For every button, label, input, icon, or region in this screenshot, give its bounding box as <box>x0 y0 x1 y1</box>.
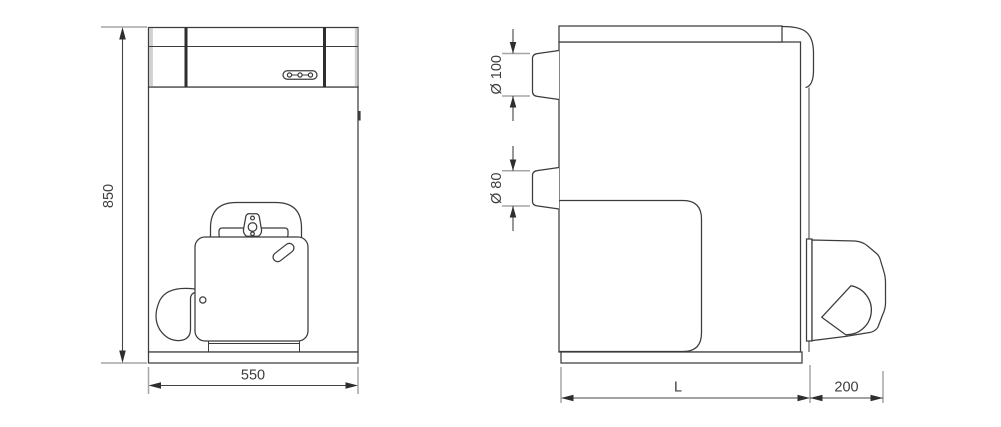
width-dimension-label: 550 <box>241 368 265 384</box>
arrowhead-up <box>510 206 517 218</box>
burner-projection-label: 200 <box>834 380 858 396</box>
top-panel-side <box>559 26 782 42</box>
hinge-hole-bottom <box>251 232 255 236</box>
pipe-diameter-dimension-80: Ø 80 <box>489 146 530 231</box>
boiler-side-outline <box>533 26 814 363</box>
base-plate <box>149 352 359 363</box>
burner-projection-dimension-200: 200 <box>810 365 883 403</box>
depth-dimension-L: L <box>561 367 810 403</box>
flue-diameter-label: Ø 100 <box>489 55 505 95</box>
side-view: Ø 100 Ø 80 L 200 <box>489 26 886 403</box>
edge-shading-left <box>149 28 153 86</box>
arrowhead-right <box>871 395 884 402</box>
arrowhead-right <box>798 395 811 402</box>
pipe-diameter-label: Ø 80 <box>489 173 505 204</box>
arrowhead-left <box>149 382 162 389</box>
flue-diameter-dimension-100: Ø 100 <box>489 29 530 121</box>
arrowhead-left <box>810 395 823 402</box>
front-view: 850 <box>101 27 361 394</box>
arrowhead-up <box>119 27 126 40</box>
control-knob-icon <box>308 73 312 77</box>
control-panel <box>283 71 317 79</box>
arrowhead-down <box>510 42 517 54</box>
arrowhead-down <box>119 351 126 364</box>
height-dimension-850: 850 <box>101 27 147 363</box>
hinge-hole-large <box>248 223 257 232</box>
housing-screw <box>200 297 206 303</box>
arrowhead-down <box>510 160 517 171</box>
technical-drawing-canvas: 850 <box>0 0 1001 427</box>
boiler-dimension-drawing: 850 <box>0 0 1001 427</box>
arrowhead-left <box>561 395 574 402</box>
hinge-hole-small <box>251 216 255 220</box>
cabinet-side-body <box>559 42 801 352</box>
edge-shading-right <box>355 28 359 86</box>
burner-mounting-flange <box>807 239 813 341</box>
arrowhead-right <box>346 382 359 389</box>
height-dimension-label: 850 <box>101 184 117 208</box>
width-dimension-550: 550 <box>149 367 359 394</box>
control-knob-icon <box>287 73 291 77</box>
flue-outlet-stub <box>533 51 560 100</box>
pipe-connection-stub <box>533 168 560 210</box>
depth-dimension-label: L <box>674 380 682 396</box>
top-panel <box>149 28 359 88</box>
base-plate-side <box>561 352 802 363</box>
burner-side <box>807 239 886 341</box>
control-knob-icon <box>298 73 302 77</box>
arrowhead-up <box>510 96 517 108</box>
door-hinge-mark <box>358 111 361 121</box>
